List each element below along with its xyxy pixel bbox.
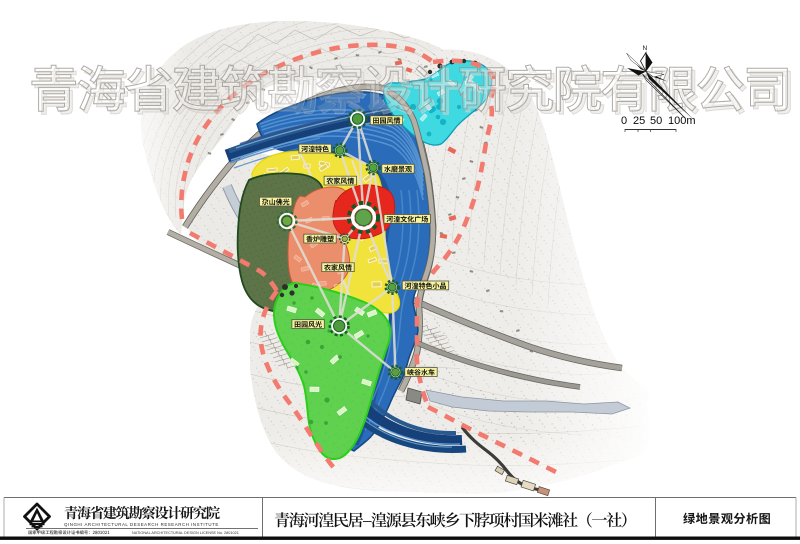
svg-text:0: 0 — [621, 115, 627, 127]
svg-text:100m: 100m — [668, 115, 696, 127]
svg-text:50: 50 — [650, 115, 662, 127]
svg-text:QINGHI ARCHITECTURAL DESEARC: QINGHI ARCHITECTURAL DESEARCH RESEARCH I… — [64, 522, 219, 527]
svg-text:N: N — [643, 45, 648, 52]
svg-text:25: 25 — [633, 115, 645, 127]
svg-text:NATIONAL ARCHITECTURAL DESIG: NATIONAL ARCHITECTURAL DESIGN LICENSE No… — [132, 531, 239, 535]
